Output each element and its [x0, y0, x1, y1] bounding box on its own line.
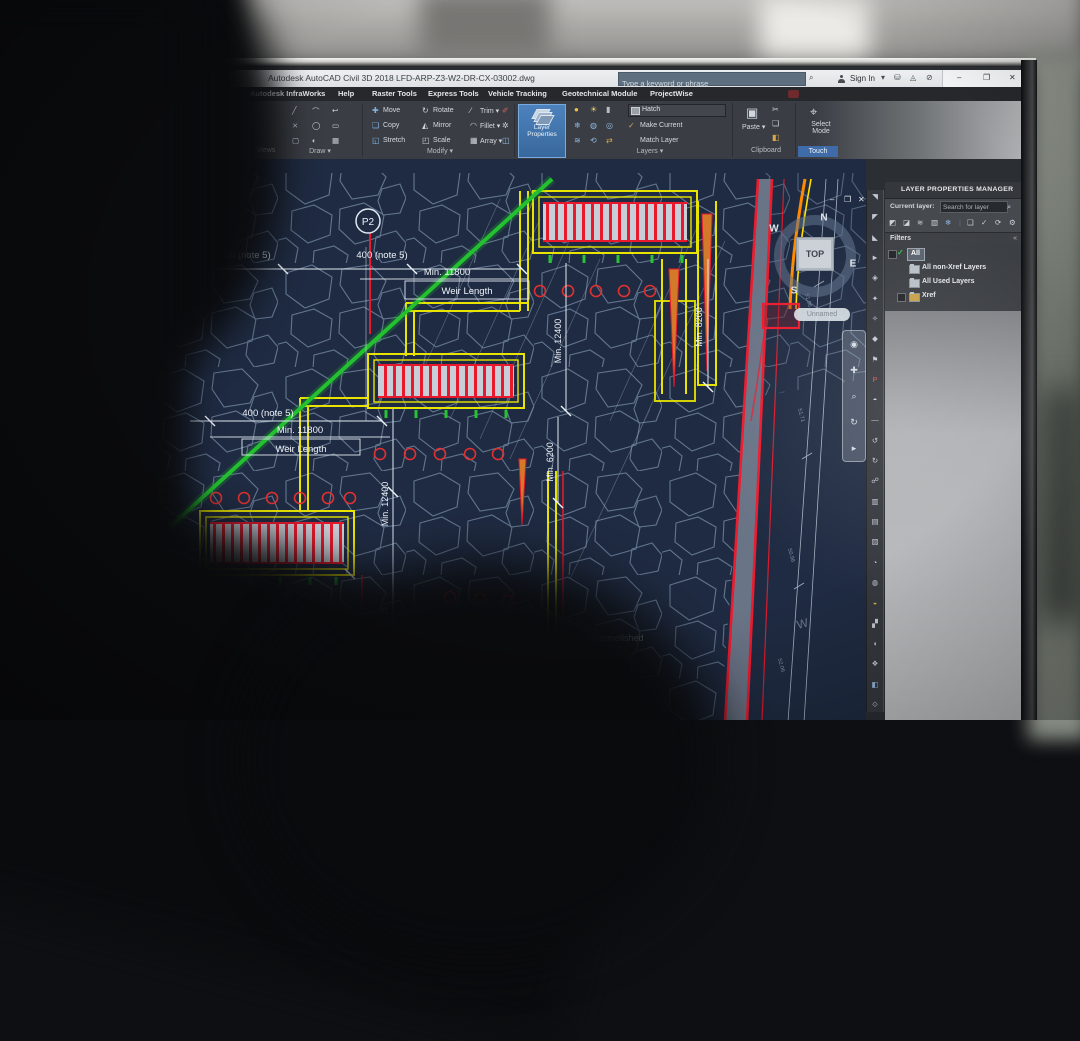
palette-toolbar: ◩ ◪ ≋ ▧ ❄ | ❏ ✓ ⟳ ⚙	[885, 216, 1022, 231]
viewcube-top-face[interactable]: TOP	[796, 237, 834, 271]
user-icon	[838, 75, 845, 83]
stretch-icon[interactable]: ◱	[372, 136, 380, 145]
layer-iso-icon[interactable]: ◎	[606, 121, 613, 130]
toolbar-icon[interactable]: ◥	[872, 193, 878, 201]
offset-icon[interactable]: ◫	[502, 136, 510, 145]
layer-dropdown[interactable]: Hatch	[628, 104, 726, 117]
match-layer-button[interactable]: Match Layer	[640, 137, 679, 144]
layer-freeze-icon[interactable]: ❄	[574, 121, 581, 130]
filter-tree: ✓ All All non-Xref Layers All Used Layer…	[885, 245, 1022, 311]
delete-layer-icon[interactable]: ❏	[967, 218, 974, 227]
current-layer-row: Current layer: ⌕	[885, 199, 1022, 215]
layer-search-icon[interactable]: ⌕	[1007, 202, 1011, 212]
redo-icon[interactable]: ↻	[872, 457, 878, 465]
zoom-icon[interactable]: ⌕	[851, 391, 856, 402]
tree-item-all[interactable]: ✓ All	[885, 247, 1022, 261]
lock-icon[interactable]: ▮	[606, 105, 610, 114]
panel-separator	[795, 103, 796, 157]
toolbar-icon[interactable]: ▤	[871, 518, 878, 526]
toolbar-icon[interactable]: ▥	[871, 498, 878, 506]
showmotion-icon[interactable]: ▸	[852, 443, 857, 454]
array-button[interactable]: Array ▾	[480, 137, 502, 145]
folder-icon	[909, 265, 920, 274]
filters-header[interactable]: Filters «	[885, 232, 1022, 246]
svg-text:Min. 6200: Min. 6200	[545, 442, 555, 482]
help-search-box[interactable]	[618, 72, 806, 86]
orbit-icon[interactable]: ↻	[850, 417, 858, 428]
svg-text:Min. 11800: Min. 11800	[424, 267, 470, 278]
panel-label-clipboard[interactable]: Clipboard	[738, 147, 794, 154]
undo-icon[interactable]: ↺	[872, 437, 878, 445]
layer-properties-manager: LAYER PROPERTIES MANAGER Current layer: …	[885, 182, 1022, 720]
filters-label: Filters	[890, 235, 911, 242]
line-icon[interactable]: ╱	[292, 106, 297, 115]
array-icon[interactable]: ▦	[470, 136, 478, 145]
layer-properties-button[interactable]: Layer Properties	[518, 104, 566, 158]
pan-icon[interactable]: ✚	[850, 365, 858, 376]
region-icon[interactable]: ▢	[292, 136, 299, 145]
ceiling-blur-light	[760, 0, 870, 57]
tab-geotechnical[interactable]: Geotechnical Module	[562, 89, 637, 98]
layer-walk-icon[interactable]: ≋	[574, 136, 581, 145]
scale-button[interactable]: Scale	[433, 137, 451, 144]
palette-header[interactable]: LAYER PROPERTIES MANAGER	[885, 182, 1022, 199]
layer-search-input[interactable]	[940, 201, 1008, 213]
ribbon-tab-bar: Autodesk InfraWorks Help Raster Tools Ex…	[150, 87, 1024, 101]
toolbar-icon[interactable]: ❖	[872, 660, 879, 668]
toolbar-icon[interactable]: ☍	[871, 477, 879, 485]
make-current-icon[interactable]: ✓	[628, 121, 635, 130]
window-controls: – ❐ ✕	[942, 70, 1024, 87]
toolbar-icon[interactable]: ◓	[873, 396, 878, 404]
wall-blur-right-dark	[1040, 390, 1080, 620]
toolbar-icon[interactable]: ◒	[873, 599, 878, 607]
viewcube[interactable]: TOP N E S W	[767, 209, 863, 305]
p2-label: P2	[362, 217, 375, 228]
panel-label-layers[interactable]: Layers ▾	[610, 147, 690, 155]
toolbar-icon[interactable]: ✧	[872, 315, 878, 323]
copy-icon[interactable]: ❏	[372, 121, 379, 130]
select-mode-icon[interactable]: ⌖	[810, 104, 817, 120]
rect-icon[interactable]: ▭	[332, 121, 339, 130]
flag-icon[interactable]: ⚑	[872, 356, 879, 364]
panel-label-touch[interactable]: Touch	[798, 148, 838, 155]
screencast-icon[interactable]	[788, 90, 799, 98]
mirror-icon[interactable]: ◭	[422, 121, 428, 130]
sign-in-button[interactable]: Sign In	[850, 74, 875, 83]
cart-icon[interactable]: ⛁	[894, 73, 901, 82]
palette-title: LAYER PROPERTIES MANAGER	[901, 186, 1013, 193]
tab-help[interactable]: Help	[338, 89, 354, 98]
monitor-bezel-top	[140, 58, 1036, 67]
trim-button[interactable]: Trim ▾	[480, 107, 499, 115]
current-layer-label: Current layer:	[890, 203, 935, 210]
panel-label-modify[interactable]: Modify ▾	[400, 147, 480, 155]
explode-icon[interactable]: ✲	[502, 121, 509, 130]
expand-icon[interactable]	[897, 293, 906, 302]
move-button[interactable]: Move	[383, 107, 400, 114]
minimize-button[interactable]: –	[957, 73, 961, 82]
fillet-icon[interactable]: ◠	[470, 121, 477, 130]
close-button[interactable]: ✕	[1009, 73, 1016, 82]
new-group-icon[interactable]: ◪	[903, 218, 910, 227]
scale-icon[interactable]: ◰	[422, 136, 430, 145]
monitor-bezel-right	[1021, 60, 1037, 720]
toolbar-icon[interactable]: ◧	[871, 681, 878, 689]
toolbar-icon[interactable]: ◍	[872, 579, 879, 587]
panel-separator	[514, 103, 515, 157]
vertical-toolbar: ◥◤ ◣► ◈✦ ✧◆ ⚑Ρ ◓— ↺↻ ☍▥ ▤▨ ◔◍ ◒▞ ◖❖ ◧⟐	[866, 190, 884, 712]
rotate-icon[interactable]: ↻	[422, 106, 429, 115]
move-icon[interactable]: ✚	[372, 106, 379, 115]
help-icon[interactable]: ⊘	[926, 73, 933, 82]
sun-icon[interactable]: ☀	[590, 105, 597, 114]
select-mode-button[interactable]: Select Mode	[802, 121, 840, 135]
svg-text:400 (note 5): 400 (note 5)	[356, 250, 407, 261]
toolbar-icon[interactable]: ◖	[873, 640, 878, 648]
cut-icon[interactable]: ✂	[772, 105, 779, 114]
document-window-controls: – ❐ ✕	[830, 195, 870, 207]
new-filter-icon[interactable]: ◩	[889, 218, 896, 227]
svg-text:Min. 12400: Min. 12400	[380, 482, 390, 527]
alert-icon[interactable]: ◬	[910, 73, 916, 82]
refresh-icon[interactable]: ⟳	[995, 218, 1001, 227]
toolbar-icon[interactable]: ►	[871, 254, 878, 262]
ribbon: Views ╱ ⌒ ↩ ⨯ ◯ ▭ ▢ ◐ ▦ Draw ▾ ✚Move ❏Co…	[150, 101, 1024, 159]
tab-raster-tools[interactable]: Raster Tools	[372, 89, 417, 98]
table-icon[interactable]: ▦	[332, 136, 339, 145]
copyclip-icon[interactable]: ❏	[772, 119, 779, 128]
erase-icon[interactable]: ✐	[502, 106, 509, 115]
paste-button[interactable]: Paste ▾	[742, 123, 765, 131]
toolbar-icon[interactable]: ◤	[872, 213, 878, 221]
tab-express-tools[interactable]: Express Tools	[428, 89, 479, 98]
person-silhouette-shoulder2	[240, 560, 720, 960]
layer-off-icon[interactable]: ◍	[590, 121, 597, 130]
toolbar-icon[interactable]: ◆	[872, 335, 878, 343]
search-icon[interactable]: ⌕	[809, 73, 813, 83]
doc-close-button[interactable]: ✕	[858, 195, 865, 204]
collapse-icon[interactable]: «	[1013, 235, 1017, 242]
mirror-button[interactable]: Mirror	[433, 122, 451, 129]
set-current-icon[interactable]: ✓	[981, 218, 987, 227]
toolbar-sep: |	[959, 218, 961, 227]
toolbar-icon[interactable]: ◈	[872, 274, 878, 282]
layer-prev-icon[interactable]: ⟲	[590, 136, 597, 145]
svg-text:Min. 11800: Min. 11800	[277, 425, 323, 436]
toolbar-icon[interactable]: ⟐	[872, 701, 878, 709]
panel-label-draw[interactable]: Draw ▾	[290, 147, 350, 155]
window-title: Autodesk AutoCAD Civil 3D 2018 LFD-ARP-Z…	[268, 73, 535, 83]
copy-button[interactable]: Copy	[383, 122, 399, 129]
layer-states-icon[interactable]: ≋	[917, 218, 923, 227]
trim-icon[interactable]: ∕	[470, 106, 471, 115]
toolbar-icon[interactable]: ▞	[872, 620, 878, 628]
ceiling-blur-dark	[420, 0, 550, 60]
freeze-vp-icon[interactable]: ❄	[945, 218, 951, 227]
svg-text:Weir Length: Weir Length	[275, 444, 326, 455]
tab-vehicle-tracking[interactable]: Vehicle Tracking	[488, 89, 547, 98]
make-current-button[interactable]: Make Current	[640, 122, 682, 129]
viewport-label-pill[interactable]: Unnamed	[794, 308, 850, 321]
stretch-button[interactable]: Stretch	[383, 137, 405, 144]
bulb-icon[interactable]: ●	[574, 105, 579, 114]
folder-icon	[909, 279, 920, 288]
match-layer-icon[interactable]: ⇄	[606, 136, 613, 145]
panel-separator	[362, 103, 363, 157]
compass-east[interactable]: E	[850, 259, 857, 270]
doc-restore-button[interactable]: ❐	[844, 195, 851, 204]
panel-separator	[732, 103, 733, 157]
new-layer-icon[interactable]: ▧	[931, 218, 938, 227]
compass-south[interactable]: S	[791, 286, 798, 297]
paste-icon: ▣	[746, 105, 758, 121]
hatch-tool-icon[interactable]: ◐	[312, 136, 317, 145]
restore-button[interactable]: ❐	[983, 73, 990, 82]
toolbar-icon[interactable]: ◔	[873, 559, 878, 567]
layer-dropdown-value: Hatch	[642, 106, 660, 113]
arc-icon[interactable]: ⌒	[312, 106, 320, 117]
green-check-icon: ✓	[897, 248, 904, 257]
chevron-down-icon[interactable]: ▾	[881, 73, 885, 82]
toolbar-icon[interactable]: ✦	[872, 295, 878, 303]
doc-minimize-button[interactable]: –	[830, 195, 834, 204]
toolbar-icon[interactable]: ◣	[872, 234, 878, 242]
pasteblock-icon[interactable]: ◧	[772, 133, 780, 142]
settings-icon[interactable]: ⚙	[1009, 218, 1016, 227]
tree-item-used[interactable]: All Used Layers	[885, 276, 1022, 290]
xline-icon[interactable]: ⨯	[292, 121, 298, 130]
circle-icon[interactable]: ◯	[312, 121, 320, 130]
toolbar-icon[interactable]: ▨	[871, 538, 878, 546]
svg-text:Weir Length: Weir Length	[441, 286, 492, 297]
rotate-button[interactable]: Rotate	[433, 107, 454, 114]
svg-text:Min. 8200: Min. 8200	[694, 307, 704, 347]
svg-text:Min. 12400: Min. 12400	[553, 319, 563, 364]
navigation-bar: ◉ ✚ ⌕ ↻ ▸	[842, 330, 866, 462]
layer-color-swatch	[631, 107, 640, 115]
xref-folder-icon	[909, 293, 920, 302]
compass-north[interactable]: N	[820, 213, 827, 224]
layers-stack-icon	[534, 109, 550, 123]
layer-list-area[interactable]	[885, 311, 1022, 720]
compass-west[interactable]: W	[769, 224, 778, 235]
steering-wheel-icon[interactable]: ◉	[850, 339, 858, 350]
tree-item-xref[interactable]: Xref	[885, 290, 1022, 304]
svg-text:400 (note 5): 400 (note 5)	[242, 408, 293, 419]
title-bar: Autodesk AutoCAD Civil 3D 2018 LFD-ARP-Z…	[150, 70, 1024, 87]
tree-item-non-xref[interactable]: All non-Xref Layers	[885, 262, 1022, 276]
tab-projectwise[interactable]: ProjectWise	[650, 89, 693, 98]
fillet-button[interactable]: Fillet ▾	[480, 122, 500, 130]
pline-icon[interactable]: ↩	[332, 106, 338, 115]
checkbox-icon[interactable]	[888, 250, 897, 259]
toolbar-divider: —	[871, 416, 879, 424]
parking-icon[interactable]: Ρ	[872, 376, 877, 384]
